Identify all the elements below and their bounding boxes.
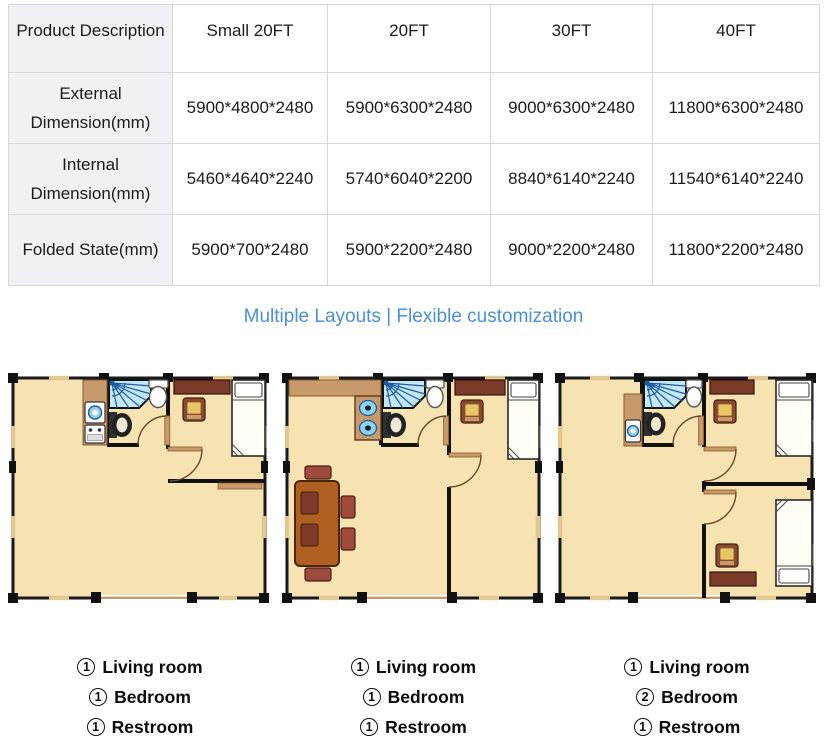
spec-value-cell: 5900*4800*2480	[173, 73, 328, 144]
floorplan-small-20ft-drawing	[5, 368, 272, 608]
spec-value-cell: 5740*6040*2200	[328, 144, 491, 215]
legend-line: 2Bedroom	[552, 682, 822, 712]
legend-count-badge: 1	[624, 658, 642, 676]
sink-icon	[644, 412, 666, 436]
spec-table-header-row: Product DescriptionSmall 20FT20FT30FT40F…	[9, 5, 820, 73]
legend-count-badge: 1	[360, 718, 378, 736]
legend-room-label: Living room	[102, 652, 202, 682]
dresser-icon	[710, 380, 754, 394]
floorplan-legend: 1Living room2Bedroom1Restroom	[552, 652, 822, 742]
chair-icon	[716, 544, 738, 567]
legend-room-label: Living room	[376, 652, 476, 682]
legend-room-label: Bedroom	[114, 682, 191, 712]
legend-count-badge: 1	[363, 688, 381, 706]
spec-value-cell: 5900*2200*2480	[328, 215, 491, 286]
dresser-icon	[455, 380, 505, 395]
floor	[560, 378, 812, 598]
spec-header-cell: 30FT	[491, 5, 653, 73]
spec-value-cell: 11800*6300*2480	[653, 73, 820, 144]
legend-line: 1Living room	[279, 652, 549, 682]
washer-column	[624, 394, 642, 446]
spec-table: Product DescriptionSmall 20FT20FT30FT40F…	[8, 4, 820, 286]
legend-room-label: Restroom	[112, 712, 194, 742]
legend-room-label: Bedroom	[388, 682, 465, 712]
toilet-icon	[149, 380, 168, 408]
spec-value-cell: 8840*6140*2240	[491, 144, 653, 215]
layout-plans-row: 1Living room1Bedroom1Restroom	[0, 368, 827, 742]
washer-column	[83, 380, 107, 445]
legend-line: 1Restroom	[279, 712, 549, 742]
spec-value-cell: 9000*6300*2480	[491, 73, 653, 144]
legend-line: 1Living room	[552, 652, 822, 682]
bed-icon	[508, 380, 539, 459]
kitchen-counter	[289, 380, 381, 396]
chair-icon	[461, 400, 483, 423]
legend-room-label: Restroom	[385, 712, 467, 742]
legend-count-badge: 1	[351, 658, 369, 676]
bed-icon	[776, 500, 812, 586]
toilet-icon	[686, 380, 702, 407]
legend-count-badge: 1	[77, 658, 95, 676]
kitchen-sink-icon	[355, 396, 381, 440]
floorplan-20ft: 1Living room1Bedroom1Restroom	[279, 368, 549, 742]
toilet-icon	[426, 380, 444, 408]
spec-row-label: Internal Dimension(mm)	[9, 144, 173, 215]
legend-count-badge: 1	[89, 688, 107, 706]
bed-icon	[776, 380, 812, 456]
legend-room-label: Restroom	[659, 712, 741, 742]
legend-line: 1Bedroom	[5, 682, 275, 712]
spec-header-cell: Small 20FT	[173, 5, 328, 73]
floorplan-30ft-40ft-drawing	[552, 368, 819, 608]
chair-icon	[714, 400, 736, 423]
washer-icon	[626, 420, 641, 442]
dryer-icon	[85, 425, 105, 443]
legend-count-badge: 2	[636, 688, 654, 706]
legend-room-label: Living room	[649, 652, 749, 682]
product-description-page: Product DescriptionSmall 20FT20FT30FT40F…	[0, 4, 827, 742]
spec-value-cell: 5900*700*2480	[173, 215, 328, 286]
spec-table-row: Internal Dimension(mm)5460*4640*22405740…	[9, 144, 820, 215]
chair-icon	[183, 398, 205, 421]
spec-header-cell: 20FT	[328, 5, 491, 73]
section-heading: Multiple Layouts | Flexible customizatio…	[0, 306, 827, 328]
floorplan-30ft-40ft: 1Living room2Bedroom1Restroom	[552, 368, 822, 742]
spec-value-cell: 5900*6300*2480	[328, 73, 491, 144]
spec-row-label: External Dimension(mm)	[9, 73, 173, 144]
spec-table-row: Folded State(mm)5900*700*24805900*2200*2…	[9, 215, 820, 286]
floorplan-legend: 1Living room1Bedroom1Restroom	[279, 652, 549, 742]
legend-count-badge: 1	[634, 718, 652, 736]
legend-count-badge: 1	[87, 718, 105, 736]
dresser-icon	[174, 380, 230, 394]
spec-header-label: Product Description	[9, 5, 173, 73]
legend-line: 1Restroom	[552, 712, 822, 742]
legend-line: 1Living room	[5, 652, 275, 682]
floorplan-legend: 1Living room1Bedroom1Restroom	[5, 652, 275, 742]
floorplan-small-20ft: 1Living room1Bedroom1Restroom	[5, 368, 275, 742]
floorplan-20ft-drawing	[279, 368, 546, 608]
spec-table-body: External Dimension(mm)5900*4800*24805900…	[9, 73, 820, 286]
spec-value-cell: 11540*6140*2240	[653, 144, 820, 215]
bed-icon	[232, 380, 265, 456]
legend-room-label: Bedroom	[661, 682, 738, 712]
washer-icon	[85, 402, 105, 423]
spec-value-cell: 9000*2200*2480	[491, 215, 653, 286]
spec-value-cell: 5460*4640*2240	[173, 144, 328, 215]
dresser-icon	[710, 572, 756, 586]
legend-line: 1Restroom	[5, 712, 275, 742]
legend-line: 1Bedroom	[279, 682, 549, 712]
spec-table-row: External Dimension(mm)5900*4800*24805900…	[9, 73, 820, 144]
spec-value-cell: 11800*2200*2480	[653, 215, 820, 286]
spec-header-cell: 40FT	[653, 5, 820, 73]
spec-row-label: Folded State(mm)	[9, 215, 173, 286]
